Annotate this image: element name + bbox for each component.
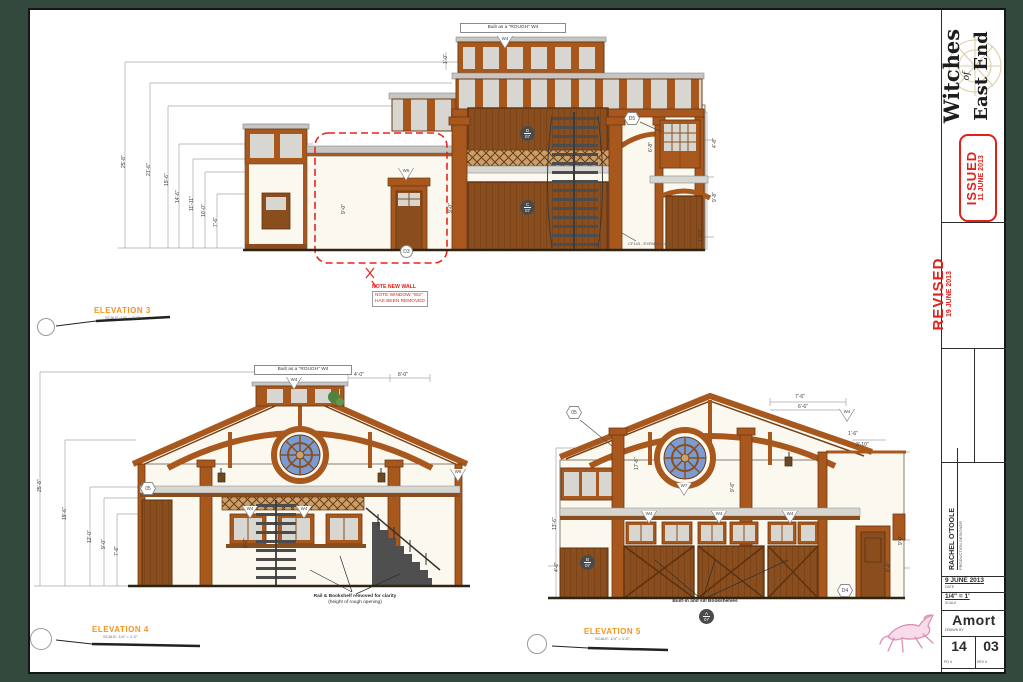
credit-set-designer: B. HEITMANN SET DESIGNER (977, 352, 1003, 462)
meta-scale: 1/4" = 1' SCALE (945, 593, 970, 606)
meta-drawn-by: Amort DRAWN BY (945, 612, 1003, 633)
project-location: STAGE 1 LOCATION (964, 464, 982, 574)
logo-word-3: East End (972, 20, 992, 132)
elevation-4-title: ELEVATION 4 SCALE: 1/4" = 1'-0" (92, 625, 149, 639)
note-cf: CF143 - EXPAND 8 & 10 (628, 241, 672, 246)
note-bookshelves: Built-in and sill Bookshelves (650, 599, 760, 605)
note-window-removed: NOTE WINDOW "W2" HAS BEEN REMOVED (372, 291, 428, 307)
meta-page-number: 14 PG # (944, 639, 974, 665)
horse-logo-icon (878, 605, 940, 659)
logo-word-1: Witches (941, 20, 963, 132)
project-set-name: INT. NORTH HAMPTON LIBRARY SET NAME (944, 464, 964, 574)
meta-date: 9 JUNE 2013 DATE (945, 577, 984, 590)
elevation-4-bubble (30, 628, 52, 650)
show-logo: Witches of East End (941, 10, 1008, 122)
drawing-page: Built as a "ROUGH" W4 Built as a "ROUGH"… (0, 0, 1023, 682)
elevation-3-drawing (118, 37, 714, 287)
credit-art-director: NIGEL EVANS ART DIRECTOR (950, 352, 976, 462)
issued-stamp: ISSUED 11 JUNE 2013 (959, 134, 997, 222)
elevation-3-bubble (37, 318, 55, 336)
revised-stamp: REVISED 19 JUNE 2013 (929, 124, 961, 216)
credit-production-designer: RACHEL O'TOOLE PRODUCTION DESIGNER (944, 224, 970, 348)
note-new-wall-title: NOTE NEW WALL (372, 284, 416, 290)
drawing-area (0, 0, 1023, 682)
meta-revision-number: 03 REV # (977, 639, 1005, 665)
elevation-4-drawing (34, 372, 470, 594)
note-rough-w4-elev3: Built as a "ROUGH" W4 (460, 23, 566, 33)
project-drawing: ELEVATIONS 3 - 5 DRAWING (981, 464, 999, 574)
elevation-5-bubble (527, 634, 547, 654)
elevation-5-title: ELEVATION 5 SCALE: 1/4" = 1'-0" (584, 627, 641, 641)
note-rough-w4-elev4: Built as a "ROUGH" W4 (254, 365, 352, 375)
elevation-3-title: ELEVATION 3 SCALE: 1/4" = 1'-0" (94, 306, 151, 320)
elevation-5-drawing (548, 396, 910, 598)
note-rail-removed: Rail & Bookshelf removed for clarity (he… (300, 594, 410, 606)
